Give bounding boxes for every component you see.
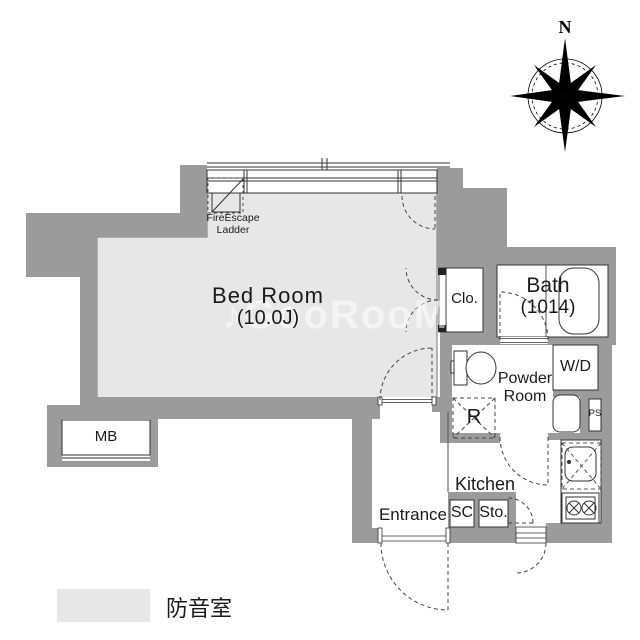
entrance-door-sill (378, 528, 450, 543)
floor-plan: N ♪GooRooM Bed Room (10.0J) FireEscape L… (0, 0, 640, 640)
meter-box-label: MB (62, 429, 150, 445)
bath-size-label: (1014) (500, 298, 596, 318)
compass-north-label: N (559, 17, 572, 37)
kitchen-sink-icon (565, 447, 596, 481)
service-door-sill (516, 527, 546, 543)
legend-soundproof-label: 防音室 (166, 591, 232, 623)
legend-soundproof-swatch (57, 589, 150, 622)
bath-label: Bath (500, 275, 596, 297)
entrance-label: Entrance (376, 506, 450, 524)
shoe-closet-label: SC (450, 505, 474, 522)
powder-room-label-2: Room (490, 389, 560, 406)
compass-rose: N (510, 17, 625, 152)
fire-escape-label-2: Ladder (203, 225, 263, 236)
bedroom-door-threshold (378, 397, 436, 405)
washer-dryer-label: W/D (553, 359, 598, 376)
closet-label: Clo. (446, 291, 483, 307)
kitchen-label: Kitchen (440, 475, 530, 494)
service-door-swing (516, 543, 546, 573)
fire-escape-label-1: FireEscape (203, 213, 263, 224)
bedroom-label: Bed Room (168, 284, 368, 307)
bath-door-sill (500, 337, 548, 344)
pipe-space-label: PS (588, 409, 602, 419)
storage-label: Sto. (478, 505, 509, 522)
powder-room-label-1: Powder (490, 371, 560, 388)
refrigerator-label: R (462, 407, 486, 428)
stove-icon (562, 493, 599, 523)
bedroom-size-label: (10.0J) (168, 308, 368, 329)
entrance-door-swing (381, 543, 448, 610)
